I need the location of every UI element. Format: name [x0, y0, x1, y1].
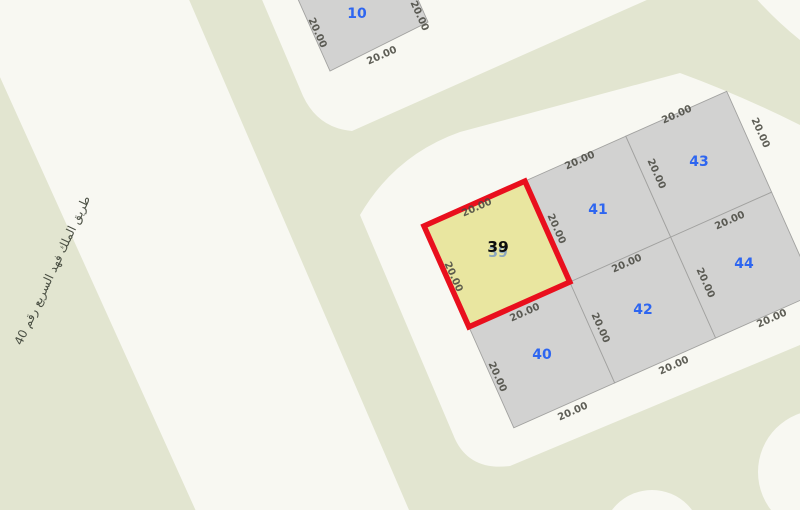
- map-svg[interactable]: طريق الملك فهد السريع رقم 40104143404244…: [0, 0, 800, 510]
- parcel-number: 42: [633, 302, 652, 318]
- parcel-number: 10: [347, 6, 367, 22]
- map-canvas[interactable]: طريق الملك فهد السريع رقم 40104143404244…: [0, 0, 800, 510]
- selected-parcel-number: 39: [487, 238, 509, 256]
- parcel-number: 44: [734, 256, 754, 272]
- parcel-number: 41: [588, 202, 607, 218]
- parcel-number: 43: [689, 154, 708, 170]
- parcel-number: 40: [532, 347, 552, 363]
